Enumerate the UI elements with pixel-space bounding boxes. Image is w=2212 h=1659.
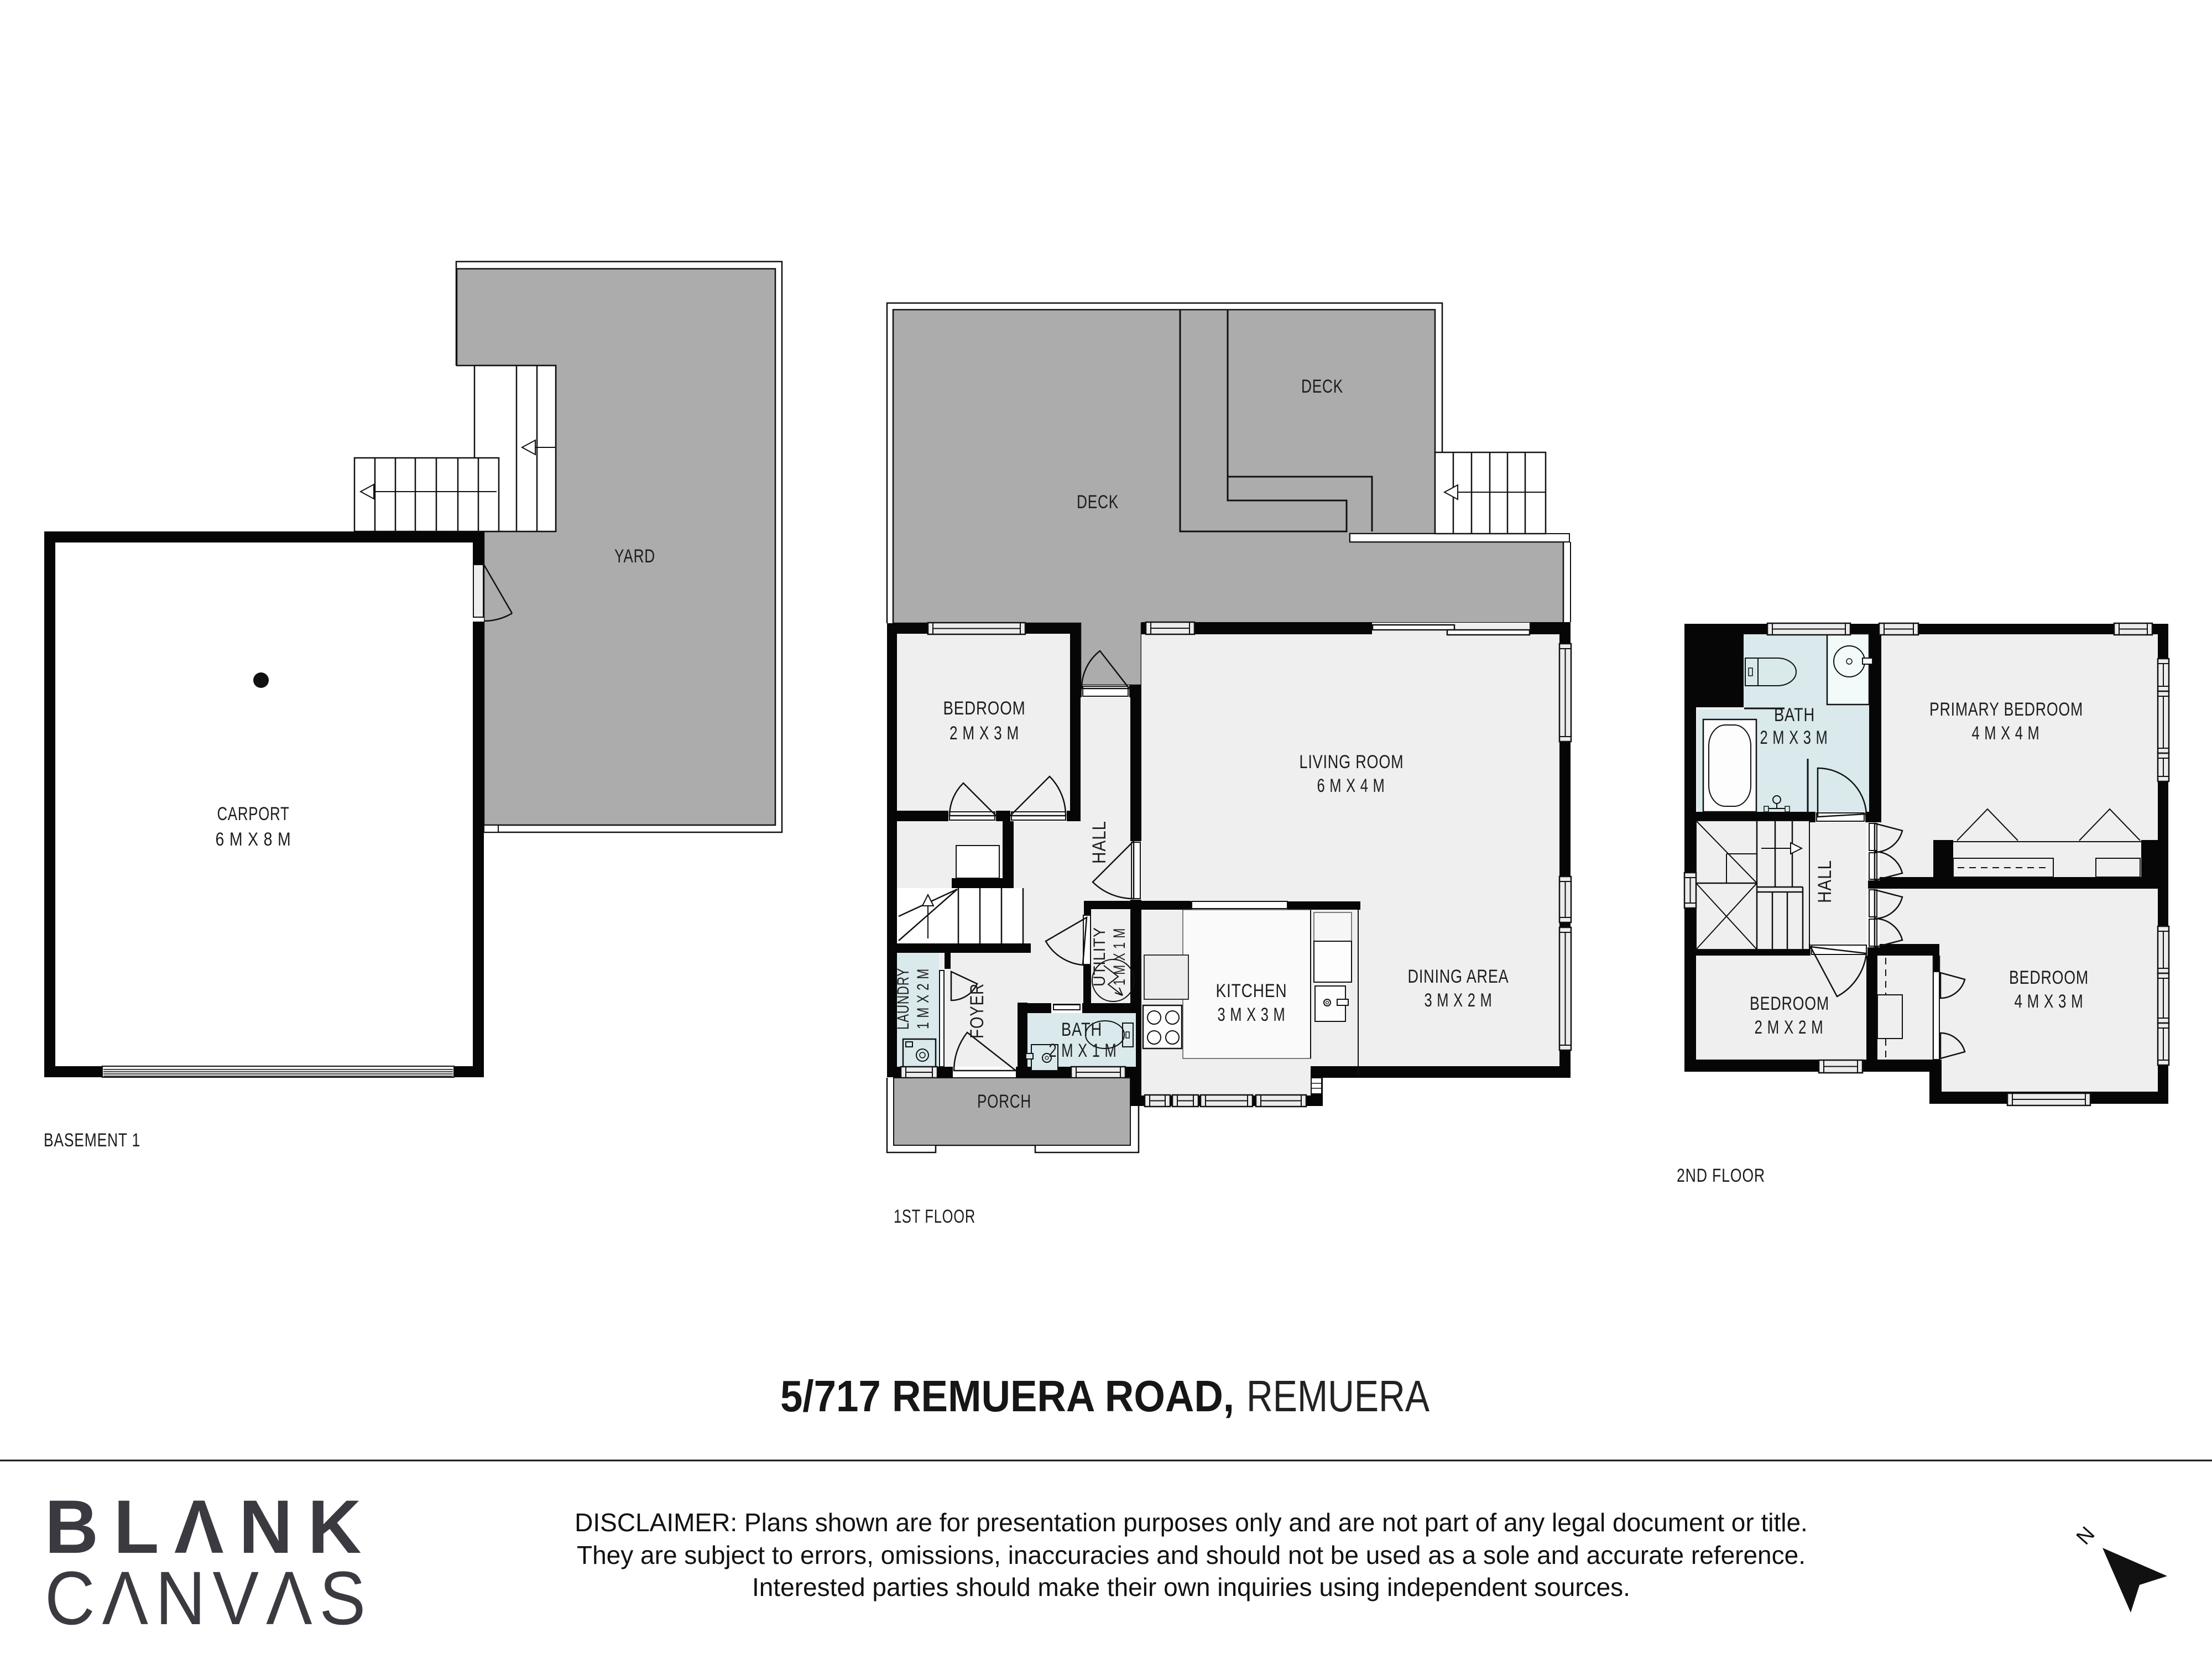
svg-text:6 M X 8 M: 6 M X 8 M <box>216 829 291 850</box>
svg-text:YARD: YARD <box>614 546 655 567</box>
svg-text:2 M X 2 M: 2 M X 2 M <box>1755 1017 1824 1038</box>
svg-text:BEDROOM: BEDROOM <box>1750 993 1829 1014</box>
svg-text:REMUERA: REMUERA <box>1246 1371 1430 1421</box>
svg-text:4 M X 3 M: 4 M X 3 M <box>2015 991 2084 1012</box>
svg-text:FOYER: FOYER <box>967 983 988 1039</box>
svg-text:3 M X 3 M: 3 M X 3 M <box>1218 1004 1286 1025</box>
svg-text:LIVING ROOM: LIVING ROOM <box>1300 752 1404 773</box>
svg-text:4 M X 4 M: 4 M X 4 M <box>1972 723 2040 744</box>
svg-text:PORCH: PORCH <box>977 1091 1031 1112</box>
svg-text:HALL: HALL <box>1814 860 1835 903</box>
svg-text:6 M X 4 M: 6 M X 4 M <box>1317 775 1385 796</box>
svg-text:PRIMARY BEDROOM: PRIMARY BEDROOM <box>1929 699 2083 720</box>
svg-text:BASEMENT 1: BASEMENT 1 <box>44 1130 140 1151</box>
svg-text:2ND FLOOR: 2ND FLOOR <box>1677 1165 1765 1186</box>
svg-text:LAUNDRY: LAUNDRY <box>894 968 912 1030</box>
svg-text:3 M X 2 M: 3 M X 2 M <box>1425 990 1493 1011</box>
svg-text:BATH: BATH <box>1774 705 1815 726</box>
svg-text:1 M X 1 M: 1 M X 1 M <box>1110 928 1129 985</box>
svg-text:BATH: BATH <box>1061 1019 1102 1040</box>
svg-text:DECK: DECK <box>1077 492 1119 513</box>
svg-text:BEDROOM: BEDROOM <box>943 698 1026 719</box>
svg-text:BEDROOM: BEDROOM <box>2009 967 2089 988</box>
svg-text:DECK: DECK <box>1301 376 1343 397</box>
svg-text:2 M X 1 M: 2 M X 1 M <box>1049 1040 1117 1061</box>
svg-text:1ST FLOOR: 1ST FLOOR <box>894 1206 975 1227</box>
svg-text:HALL: HALL <box>1089 821 1110 864</box>
svg-text:5/717 REMUERA ROAD,: 5/717 REMUERA ROAD, <box>780 1371 1234 1421</box>
svg-text:DISCLAIMER: Plans shown are fo: DISCLAIMER: Plans shown are for presenta… <box>575 1508 1808 1537</box>
svg-text:DINING AREA: DINING AREA <box>1408 966 1509 987</box>
svg-text:1 M X 2 M: 1 M X 2 M <box>914 968 932 1029</box>
svg-text:UTILITY: UTILITY <box>1091 927 1109 987</box>
svg-text:They are subject to errors, om: They are subject to errors, omissions, i… <box>577 1541 1806 1569</box>
svg-text:2 M X 3 M: 2 M X 3 M <box>1760 727 1828 748</box>
svg-text:CΛNVΛS: CΛNVΛS <box>45 1556 373 1641</box>
svg-text:KITCHEN: KITCHEN <box>1216 980 1287 1001</box>
svg-text:Interested parties should make: Interested parties should make their own… <box>752 1573 1630 1601</box>
svg-text:2 M X 3 M: 2 M X 3 M <box>950 723 1019 744</box>
svg-text:CARPORT: CARPORT <box>217 804 290 825</box>
